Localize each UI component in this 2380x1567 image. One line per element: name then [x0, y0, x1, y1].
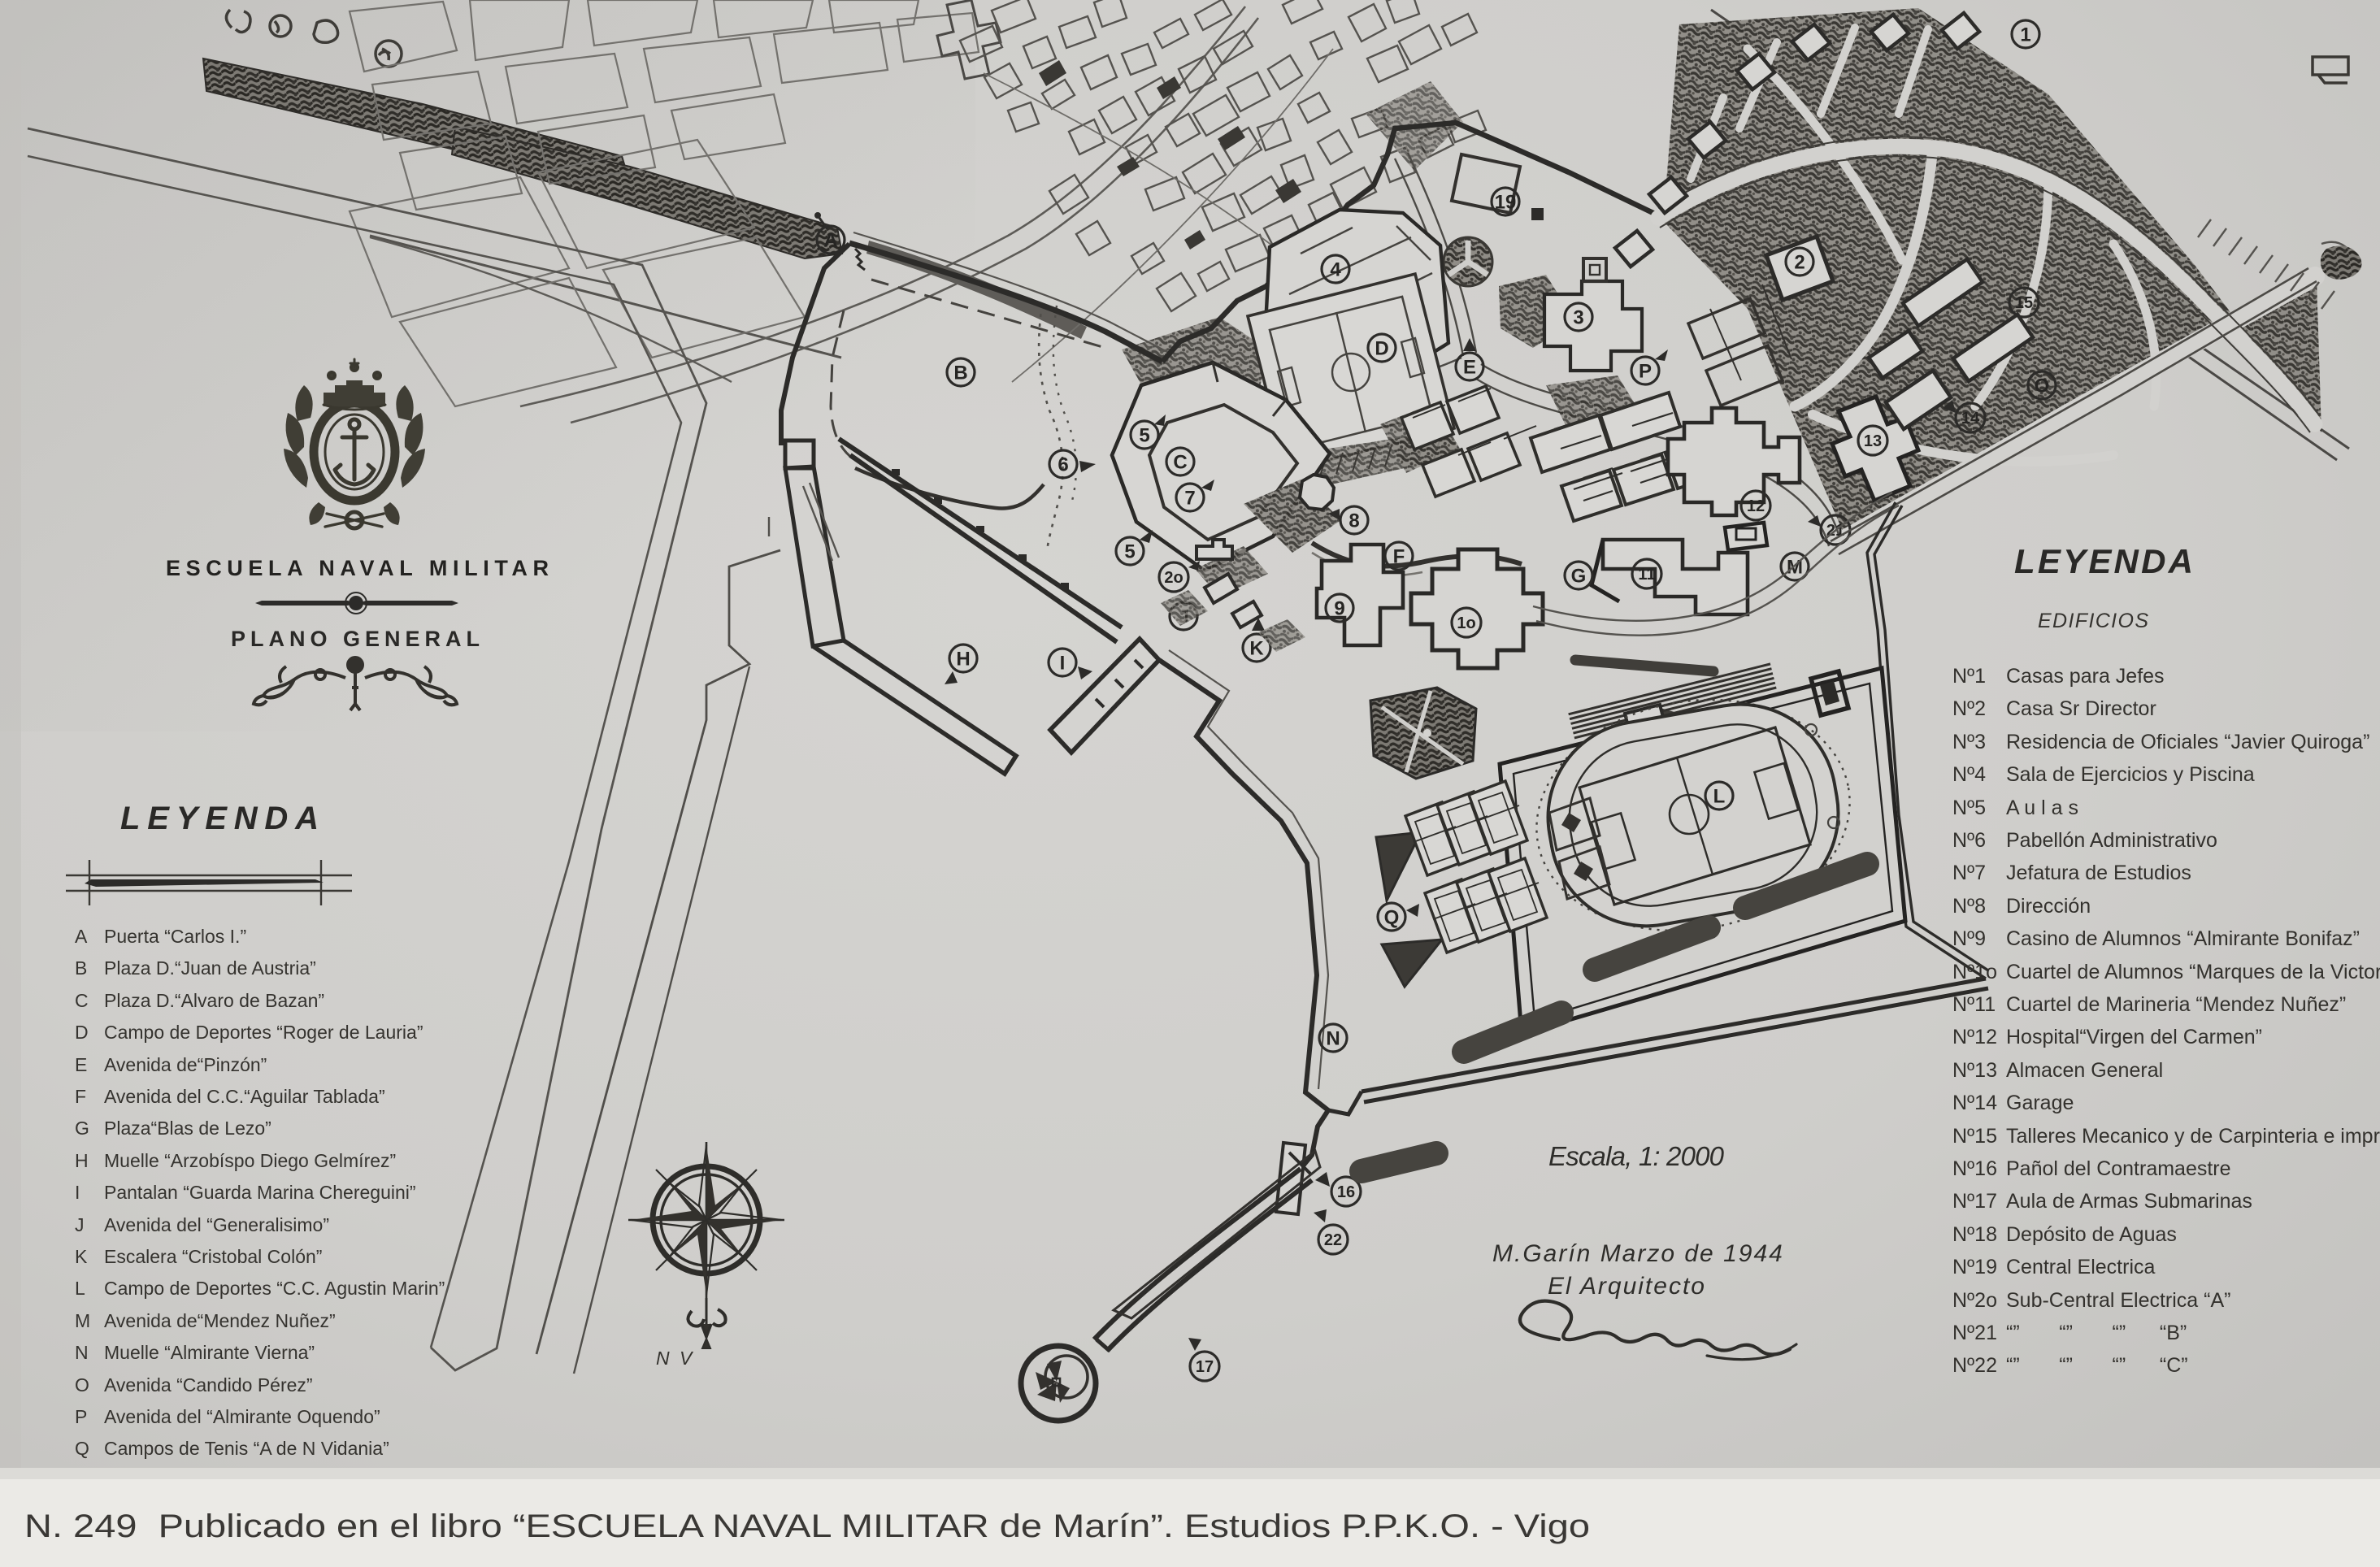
svg-text:Dirección: Dirección — [2006, 895, 2091, 918]
svg-text:Escala, 1: 2000: Escala, 1: 2000 — [1548, 1141, 1725, 1171]
svg-text:Casino de Alumnos “Almirante B: Casino de Alumnos “Almirante Bonifaz” — [2006, 927, 2360, 950]
svg-text:19: 19 — [1495, 192, 1517, 214]
svg-text:Nº6: Nº6 — [1952, 829, 1986, 852]
svg-text:2: 2 — [1794, 252, 1805, 274]
svg-text:D: D — [1375, 338, 1388, 360]
svg-text:Nº19: Nº19 — [1952, 1256, 1997, 1278]
svg-text:4: 4 — [1330, 259, 1341, 281]
svg-text:A: A — [75, 926, 88, 947]
svg-text:1: 1 — [2020, 24, 2030, 46]
svg-text:16: 16 — [1337, 1183, 1355, 1201]
svg-text:Q: Q — [75, 1438, 89, 1459]
svg-text:9: 9 — [1334, 598, 1344, 620]
svg-text:8: 8 — [1349, 510, 1359, 532]
svg-text:11: 11 — [1638, 566, 1655, 584]
svg-text:12: 12 — [1747, 497, 1765, 515]
svg-text:F: F — [1393, 546, 1405, 568]
svg-text:Cuartel de Marineria “Mendez N: Cuartel de Marineria “Mendez Nuñez” — [2006, 993, 2346, 1016]
svg-text:Garage: Garage — [2006, 1092, 2074, 1114]
svg-text:Plaza“Blas de Lezo”: Plaza“Blas de Lezo” — [104, 1118, 271, 1139]
svg-text:Talleres Mecanico y de Carpint: Talleres Mecanico y de Carpinteria e imp… — [2006, 1125, 2380, 1148]
svg-text:Nº21: Nº21 — [1952, 1322, 1997, 1344]
svg-text:Avenida del C.C.“Aguilar Tabla: Avenida del C.C.“Aguilar Tablada” — [104, 1086, 385, 1107]
svg-text:“” “” “” “B”: “” “” “” “B” — [2006, 1322, 2187, 1344]
svg-text:“” “” “” “C”: “” “” “” “C” — [2006, 1354, 2188, 1377]
svg-text:Nº4: Nº4 — [1952, 763, 1986, 786]
svg-text:Central Electrica: Central Electrica — [2006, 1256, 2155, 1278]
svg-text:3: 3 — [1573, 307, 1583, 329]
svg-text:El Arquitecto: El Arquitecto — [1548, 1273, 1706, 1300]
svg-text:Nº22: Nº22 — [1952, 1354, 1997, 1377]
svg-text:O: O — [2035, 375, 2050, 397]
svg-text:Puerta “Carlos I.”: Puerta “Carlos I.” — [104, 926, 246, 947]
svg-text:1o: 1o — [1457, 614, 1475, 632]
svg-text:Nº16: Nº16 — [1952, 1157, 1997, 1180]
svg-text:22: 22 — [1324, 1231, 1342, 1249]
svg-text:Sub-Central Electrica “A”: Sub-Central Electrica “A” — [2006, 1289, 2230, 1312]
svg-text:P: P — [1639, 361, 1652, 383]
svg-text:Avenida “Candido Pérez”: Avenida “Candido Pérez” — [104, 1374, 313, 1396]
svg-text:Nº9: Nº9 — [1952, 927, 1986, 950]
svg-text:Nº1: Nº1 — [1952, 665, 1986, 688]
svg-text:K: K — [1249, 638, 1264, 660]
svg-text:Avenida de“Pinzón”: Avenida de“Pinzón” — [104, 1054, 267, 1075]
svg-text:Campo de Deportes “Roger de La: Campo de Deportes “Roger de Lauria” — [104, 1022, 423, 1043]
svg-text:G: G — [75, 1118, 89, 1139]
svg-text:Q: Q — [1384, 907, 1400, 929]
svg-text:Casas para Jefes: Casas para Jefes — [2006, 665, 2165, 688]
svg-text:H: H — [956, 649, 970, 671]
svg-text:O: O — [75, 1374, 89, 1396]
svg-text:Nº2: Nº2 — [1952, 697, 1986, 720]
svg-text:Plaza D.“Juan de Austria”: Plaza D.“Juan de Austria” — [104, 957, 316, 979]
svg-text:Nº8: Nº8 — [1952, 895, 1986, 918]
svg-text:I: I — [75, 1182, 80, 1203]
svg-text:Nº12: Nº12 — [1952, 1026, 1997, 1048]
svg-text:Hospital“Virgen del Carmen”: Hospital“Virgen del Carmen” — [2006, 1026, 2262, 1048]
svg-text:C: C — [1173, 452, 1187, 474]
svg-text:P: P — [75, 1406, 87, 1427]
svg-text:Campo de Deportes “C.C. Agusti: Campo de Deportes “C.C. Agustin Marin” — [104, 1278, 445, 1299]
svg-text:Nº17: Nº17 — [1952, 1190, 1997, 1213]
svg-text:5: 5 — [1139, 425, 1149, 447]
svg-text:D: D — [75, 1022, 89, 1043]
svg-text:5: 5 — [1124, 541, 1135, 563]
svg-text:7: 7 — [1184, 488, 1195, 510]
svg-text:C: C — [75, 990, 89, 1011]
svg-text:Plaza D.“Alvaro de Bazan”: Plaza D.“Alvaro de Bazan” — [104, 990, 324, 1011]
svg-text:E: E — [1463, 357, 1476, 379]
svg-text:L: L — [1713, 786, 1726, 808]
svg-text:Nº5: Nº5 — [1952, 797, 1986, 819]
svg-text:B: B — [953, 362, 967, 384]
svg-text:Aula de Armas Submarinas: Aula de Armas Submarinas — [2006, 1190, 2252, 1213]
svg-text:Nº18: Nº18 — [1952, 1223, 1997, 1246]
svg-text:N V: N V — [656, 1348, 694, 1369]
svg-text:Sala de Ejercicios y Piscina: Sala de Ejercicios y Piscina — [2006, 763, 2255, 786]
svg-text:Depósito de Aguas: Depósito de Aguas — [2006, 1223, 2177, 1246]
svg-text:Nº15: Nº15 — [1952, 1125, 1997, 1148]
svg-text:L: L — [75, 1278, 85, 1299]
svg-text:17: 17 — [1196, 1358, 1214, 1376]
svg-text:M.Garín Marzo de 1944: M.Garín Marzo de 1944 — [1492, 1240, 1784, 1267]
svg-text:2o: 2o — [1164, 569, 1183, 587]
svg-text:Escalera “Cristobal Colón”: Escalera “Cristobal Colón” — [104, 1246, 322, 1267]
svg-text:15: 15 — [2015, 294, 2033, 312]
svg-text:EDIFICIOS: EDIFICIOS — [2038, 610, 2148, 632]
svg-text:F: F — [75, 1086, 86, 1107]
svg-text:M: M — [75, 1310, 90, 1331]
svg-text:N: N — [1326, 1028, 1340, 1050]
svg-text:Cuartel de Alumnos “Marques de: Cuartel de Alumnos “Marques de la Victor… — [2006, 961, 2380, 983]
svg-text:Nº2o: Nº2o — [1952, 1289, 1997, 1312]
svg-text:Jefatura de Estudios: Jefatura de Estudios — [2006, 862, 2191, 884]
svg-text:Muelle “Arzobíspo Diego Gelmír: Muelle “Arzobíspo Diego Gelmírez” — [104, 1150, 396, 1171]
svg-text:Nº7: Nº7 — [1952, 862, 1986, 884]
svg-text:J: J — [75, 1214, 85, 1235]
svg-text:Nº3: Nº3 — [1952, 731, 1986, 753]
svg-text:A: A — [823, 230, 837, 252]
svg-text:Avenida de“Mendez Nuñez”: Avenida de“Mendez Nuñez” — [104, 1310, 336, 1331]
svg-text:Nº1o: Nº1o — [1952, 961, 1997, 983]
svg-text:Nº11: Nº11 — [1952, 993, 1996, 1016]
svg-text:Casa Sr Director: Casa Sr Director — [2006, 697, 2156, 720]
svg-text:N: N — [75, 1342, 89, 1363]
svg-text:Pabellón Administrativo: Pabellón Administrativo — [2006, 829, 2217, 852]
svg-text:G: G — [1571, 566, 1587, 588]
svg-text:6: 6 — [1058, 454, 1068, 476]
svg-text:A u l a s: A u l a s — [2006, 797, 2078, 819]
svg-text:Nº14: Nº14 — [1952, 1092, 1997, 1114]
svg-text:H: H — [75, 1150, 89, 1171]
svg-text:Pantalan “Guarda Marina Chereg: Pantalan “Guarda Marina Chereguini” — [104, 1182, 416, 1203]
svg-text:Pañol del Contramaestre: Pañol del Contramaestre — [2006, 1157, 2231, 1180]
svg-text:I: I — [1060, 653, 1066, 675]
svg-text:14: 14 — [1961, 410, 1980, 428]
svg-text:Avenida del “Almirante Oquendo: Avenida del “Almirante Oquendo” — [104, 1406, 380, 1427]
svg-text:Almacen General: Almacen General — [2006, 1059, 2163, 1082]
svg-text:Campos de Tenis “A de N Vidani: Campos de Tenis “A de N Vidania” — [104, 1438, 389, 1459]
svg-text:N. 249 Publicado en el libro: N. 249 Publicado en el libro “ESCUELA NA… — [24, 1508, 1590, 1544]
svg-text:E: E — [75, 1054, 87, 1075]
svg-text:13: 13 — [1864, 432, 1882, 450]
svg-text:K: K — [75, 1246, 88, 1267]
svg-text:Residencia de Oficiales “Javie: Residencia de Oficiales “Javier Quiroga” — [2006, 731, 2369, 753]
svg-text:B: B — [75, 957, 87, 979]
svg-text:Avenida del “Generalisimo”: Avenida del “Generalisimo” — [104, 1214, 329, 1235]
svg-text:Nº13: Nº13 — [1952, 1059, 1997, 1082]
svg-text:Muelle “Almirante Vierna”: Muelle “Almirante Vierna” — [104, 1342, 315, 1363]
